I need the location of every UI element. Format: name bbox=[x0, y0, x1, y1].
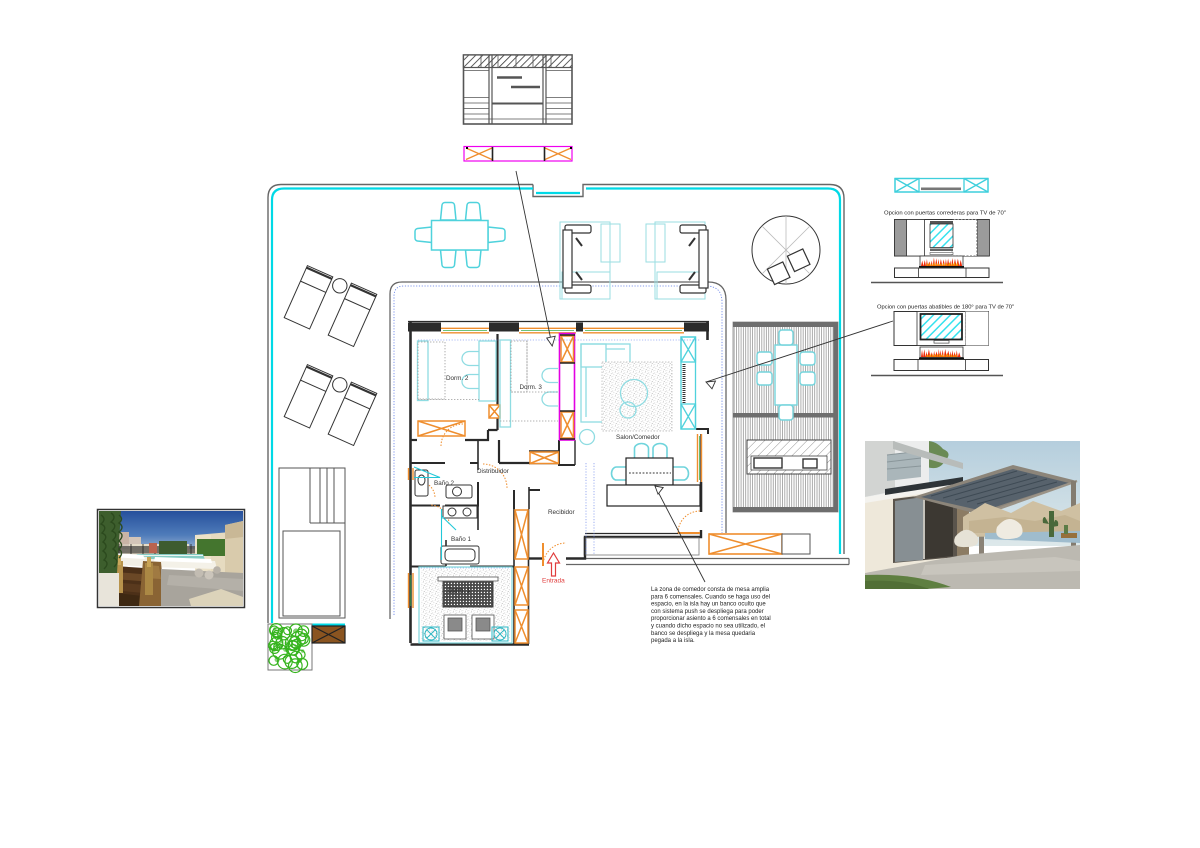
svg-text:espacio, en la isla hay un ban: espacio, en la isla hay un banco oculto … bbox=[651, 602, 766, 608]
svg-text:y cuando dicho espacio no sea: y cuando dicho espacio no sea utilizado,… bbox=[651, 624, 765, 630]
svg-text:Dorm. 1: Dorm. 1 bbox=[448, 587, 471, 594]
svg-text:proporcionar asiento a 6 comen: proporcionar asiento a 6 comensales en t… bbox=[651, 616, 771, 622]
svg-text:Opcion con puertas abatibles d: Opcion con puertas abatibles de 180° par… bbox=[877, 305, 1014, 311]
svg-text:con sistema push se despliega: con sistema push se despliega para poder bbox=[651, 609, 764, 615]
svg-text:Dorm. 2: Dorm. 2 bbox=[446, 375, 469, 382]
svg-text:Entrada: Entrada bbox=[542, 578, 565, 585]
svg-text:pegada a la isla.: pegada a la isla. bbox=[651, 638, 695, 644]
svg-text:Recibidor: Recibidor bbox=[548, 509, 575, 516]
svg-text:Salon/Comedor: Salon/Comedor bbox=[616, 434, 660, 441]
svg-text:Opcion con puertas correderas: Opcion con puertas correderas para TV de… bbox=[884, 211, 1006, 217]
svg-text:Distribuidor: Distribuidor bbox=[477, 468, 509, 475]
svg-text:La zona de comedor consta de m: La zona de comedor consta de mesa amplia bbox=[651, 587, 770, 593]
svg-text:banco se despliega y la mesa q: banco se despliega y la mesa quedaria bbox=[651, 631, 756, 637]
svg-text:Dorm. 3: Dorm. 3 bbox=[520, 384, 543, 391]
svg-text:para 6 comensales. Cuando se h: para 6 comensales. Cuando se haga uso de… bbox=[651, 594, 770, 600]
svg-text:Baño 1: Baño 1 bbox=[451, 536, 471, 543]
svg-text:Baño 2: Baño 2 bbox=[434, 480, 454, 487]
